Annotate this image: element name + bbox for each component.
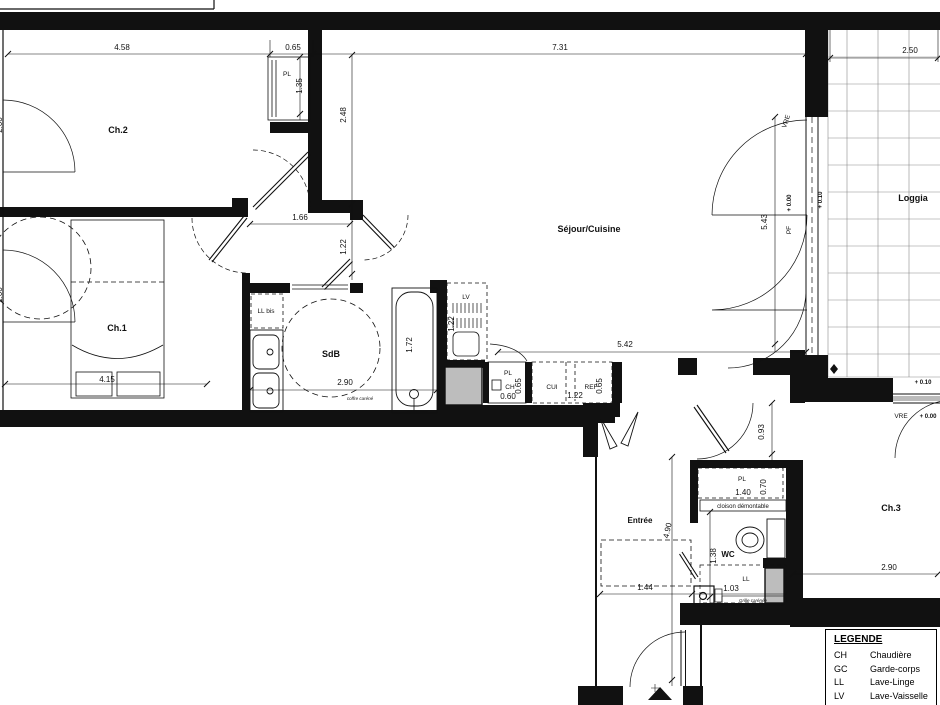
door-arc-ch1 [192,218,247,273]
legend-abbr: GC [834,663,870,677]
dim-7-31: 7.31 [552,43,568,52]
dim-edge-top: 2.00 [0,117,4,133]
legend-label: Chaudière [870,649,912,663]
legend-row: LV Lave-Vaisselle [834,690,936,704]
door-leaf-ch2 [253,152,311,210]
room-label-ch1: Ch.1 [107,323,127,333]
label-vre-ch3: VRE [894,413,908,420]
floor-plan-drawing: 4.58 0.65 7.31 2.50 PL 1.35 2.48 Ch.2 1.… [0,0,940,705]
legend-label: Garde-corps [870,663,920,677]
legend-abbr: LV [834,690,870,704]
dim-0-93: 0.93 [757,424,766,440]
label-lv: LV [462,294,470,301]
title-block-corner [0,0,214,9]
dim-1-22-kitchen: 1.22 [567,391,583,400]
dim-0-65-ch: 0.65 [514,378,523,394]
label-ll-wc: LL [742,576,750,583]
dim-2-90-ch3: 2.90 [881,563,897,572]
room-label-entree: Entrée [628,516,653,525]
dim-1-72: 1.72 [405,337,414,353]
dim-0-65-top: 0.65 [285,43,301,52]
turning-circle-ch1 [0,217,91,319]
dim-0-65-ref: 0.65 [595,378,604,394]
dim-1-66: 1.66 [292,213,308,222]
dim-5-42: 5.42 [617,340,633,349]
legend-row: CH Chaudière [834,649,936,663]
level-0-00-ch3: + 0.00 [920,414,938,420]
turning-circle-sdb [282,299,380,397]
dim-1-35: 1.35 [295,78,304,94]
door-leaf-wc [680,552,699,579]
label-cui: CUI [546,384,557,391]
label-pl-ch2: PL [283,71,291,78]
room-label-ch3: Ch.3 [881,503,901,513]
dim-5-43: 5.43 [760,214,769,230]
legend-row: GC Garde-corps [834,663,936,677]
level-0-00-window: + 0.00 [787,194,793,212]
dim-1-03: 1.03 [723,584,739,593]
legend-title: LEGENDE [834,634,936,645]
room-label-sdb: SdB [322,349,341,359]
room-label-loggia: Loggia [898,193,928,203]
double-washbasin-sdb [250,330,283,412]
legend-label: Lave-Vaisselle [870,690,928,704]
level-0-10-ch3: + 0.10 [915,380,933,386]
dim-1-38: 1.38 [709,548,718,564]
label-ll-bis: LL bis [257,308,275,315]
dim-1-22-hall: 1.22 [339,239,348,255]
cupboard-entree [601,540,691,586]
door-leaf-entrance [681,630,686,686]
dim-1-44: 1.44 [637,583,653,592]
legend-abbr: CH [834,649,870,663]
window-ch3 [893,394,940,458]
door-leaf-ch1 [209,216,247,262]
label-cloison-demontable: cloison démontable [717,504,769,510]
dim-0-70: 0.70 [759,479,768,495]
section-marker [830,364,838,374]
pocket-door-sdb [292,285,348,289]
bathtub [392,288,437,413]
legend-abbr: LL [834,676,870,690]
dim-2-50: 2.50 [902,46,918,55]
room-label-sejour: Séjour/Cuisine [557,224,620,234]
note-grille: Grille carénée [739,598,768,603]
walls [0,12,940,705]
dim-4-15: 4.15 [99,375,115,384]
label-pl-kitchen: PL [504,370,512,377]
note-coffre: coffre caréné [347,396,374,401]
legend-box: LEGENDE CH Chaudière GC Garde-corps LL L… [825,629,937,705]
dim-1-40: 1.40 [735,488,751,497]
dim-edge-bottom: 2.00 [0,287,4,303]
loggia-tile-grid [828,30,940,377]
dim-2-48: 2.48 [339,107,348,123]
window-loggia [712,117,818,368]
dim-1-22-lv: 1.22 [447,316,456,332]
floor-plan-page: 4.58 0.65 7.31 2.50 PL 1.35 2.48 Ch.2 1.… [0,0,940,705]
door-leaf-entree-b [621,412,638,446]
door-leaf-corridor [694,405,729,453]
door-arc-entrance [630,632,685,687]
label-pl-wc: PL [738,476,746,483]
dim-4-58: 4.58 [114,43,130,52]
room-label-wc: WC [721,550,735,559]
toilet-wc [736,519,785,558]
entrance-arrow [648,687,672,700]
door-arc-pl-kitchen [490,344,527,361]
bed-ch1 [71,220,164,398]
label-pf: PF [786,226,793,234]
room-label-ch2: Ch.2 [108,125,128,135]
level-0-10-loggia: + 0.10 [818,191,824,209]
dim-2-90-sdb: 2.90 [337,378,353,387]
legend-label: Lave-Linge [870,676,915,690]
legend-row: LL Lave-Linge [834,676,936,690]
door-leaf-hall [361,215,395,250]
